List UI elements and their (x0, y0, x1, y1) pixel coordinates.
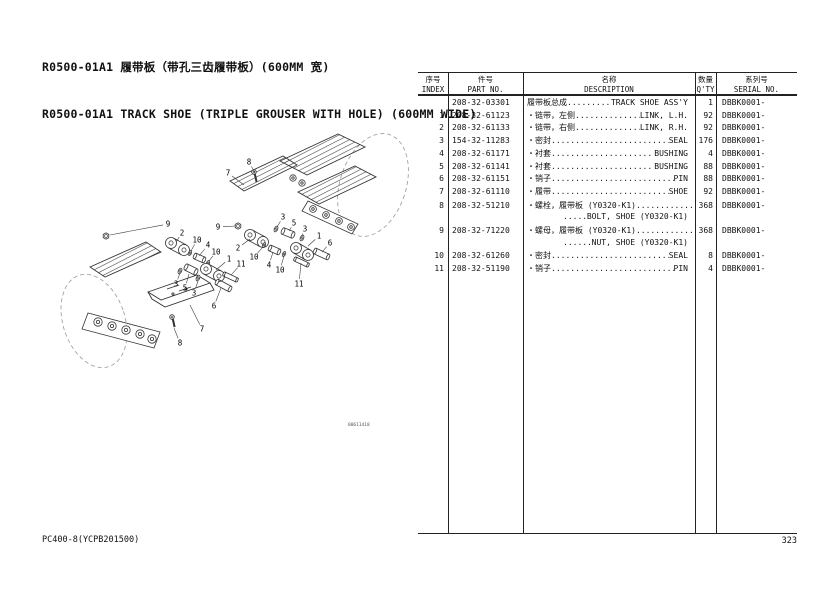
title-line-cn: R0500-01A1 履带板（带孔三齿履带板）(600MM 宽) (42, 60, 477, 76)
callout-leader (281, 256, 284, 265)
callout-number: 6 (212, 302, 217, 311)
cell-description: ・链带，左侧..................................… (523, 110, 695, 123)
header-part-no: 件号 PART NO. (448, 73, 523, 94)
callout-number: 3 (174, 280, 179, 289)
cell-index: 11 (418, 263, 448, 276)
cell-part-no: 208-32-61141 (448, 161, 523, 174)
table-row: 8208-32-51210・螺栓，履带板 (Y0320-K1).........… (418, 199, 797, 225)
table-body: 208-32-03301履带板总成.......................… (418, 97, 797, 275)
cell-index: 5 (418, 161, 448, 174)
callout-number: 5 (183, 284, 188, 293)
callout-number: 8 (178, 339, 183, 348)
callout-leader (216, 288, 221, 301)
cell-index: 4 (418, 148, 448, 161)
callout-leader (277, 221, 280, 227)
cell-description: ・履带.....................................… (523, 186, 695, 199)
table-row: 6208-32-61151・销子........................… (418, 173, 797, 186)
callout-number: 6 (328, 239, 333, 248)
cell-description: ・密封.....................................… (523, 135, 695, 148)
callout-number: 10 (211, 248, 221, 257)
callout-number: 10 (275, 266, 285, 275)
cell-part-no: 208-32-61123 (448, 110, 523, 123)
table-row: 4208-32-61171・衬套........................… (418, 148, 797, 161)
track-plate-center (230, 156, 297, 191)
cell-part-no: 208-32-61133 (448, 122, 523, 135)
cell-part-no: 208-32-61171 (448, 148, 523, 161)
table-row: 2208-32-61133・链带，右侧.....................… (418, 122, 797, 135)
cell-serial-no: DBBK0001- (716, 148, 797, 161)
cell-serial-no: DBBK0001- (716, 97, 797, 110)
cell-description: ・螺栓，履带板 (Y0320-K1)......................… (523, 200, 695, 223)
callout-leader (209, 256, 213, 261)
callout-leader (242, 239, 250, 245)
cell-serial-no: DBBK0001- (716, 250, 797, 263)
cell-index: 3 (418, 135, 448, 148)
callout-leader (308, 239, 315, 246)
table-header-separator (418, 94, 797, 96)
cell-serial-no: DBBK0001- (716, 200, 797, 211)
cell-part-no: 208-32-03301 (448, 97, 523, 110)
callout-leader (199, 249, 205, 256)
cell-description: ・螺母，履带板 (Y0320-K1)......................… (523, 225, 695, 248)
cell-qty: 4 (695, 263, 716, 276)
callout-number: 7 (200, 325, 205, 334)
callout-leader (110, 225, 163, 235)
cell-part-no: 154-32-11283 (448, 135, 523, 148)
cell-part-no: 208-32-51190 (448, 263, 523, 276)
cell-serial-no: DBBK0001- (716, 161, 797, 174)
cell-qty: 8 (695, 250, 716, 263)
table-row: 3154-32-11283・密封........................… (418, 135, 797, 148)
cell-description: ・销子.....................................… (523, 173, 695, 186)
cell-serial-no: DBBK0001- (716, 186, 797, 199)
track-plate-bottom-left (90, 242, 161, 277)
table-row: 208-32-03301履带板总成.......................… (418, 97, 797, 110)
cell-qty: 92 (695, 122, 716, 135)
exploded-parts-diagram: 87923531610410119210410111353678 0061141… (40, 85, 415, 450)
cell-serial-no: DBBK0001- (716, 122, 797, 135)
page-number: 323 (782, 536, 797, 546)
callout-number: 1 (317, 232, 322, 241)
callout-leader (216, 262, 225, 270)
callout-number: 7 (226, 169, 231, 178)
cell-serial-no: DBBK0001- (716, 173, 797, 186)
cell-qty: 368 (695, 200, 716, 211)
callout-number: 11 (236, 260, 245, 269)
callout-number: 2 (236, 244, 241, 253)
cell-serial-no: DBBK0001- (716, 110, 797, 123)
cell-part-no: 208-32-71220 (448, 225, 523, 236)
callout-number: 4 (206, 241, 211, 250)
cell-qty: 92 (695, 110, 716, 123)
callout-number: 10 (249, 253, 259, 262)
cell-description: 履带板总成...................................… (523, 97, 695, 110)
callout-number: 5 (292, 219, 297, 228)
cell-part-no: 208-32-61110 (448, 186, 523, 199)
cell-qty: 88 (695, 161, 716, 174)
cell-qty: 368 (695, 225, 716, 236)
cell-description: ・衬套.....................................… (523, 161, 695, 174)
cell-part-no: 208-32-51210 (448, 200, 523, 211)
header-qty: 数量 Q'TY (695, 73, 716, 94)
callout-leader (191, 244, 195, 251)
table-row: 9208-32-71220・螺母，履带板 (Y0320-K1).........… (418, 224, 797, 250)
callout-leader (174, 328, 178, 338)
table-header-row: 序号 INDEX 件号 PART NO. 名称 DESCRIPTION 数量 Q… (418, 73, 797, 94)
callout-number: 2 (180, 229, 185, 238)
callout-number: 4 (267, 261, 272, 270)
cell-qty: 176 (695, 135, 716, 148)
cell-serial-no: DBBK0001- (716, 225, 797, 236)
header-index: 序号 INDEX (418, 73, 448, 94)
callout-number: 3 (303, 225, 308, 234)
callout-leader (299, 263, 301, 279)
cell-description: ・销子.....................................… (523, 263, 695, 276)
callout-number: 1 (227, 255, 232, 264)
cell-part-no: 208-32-61260 (448, 250, 523, 263)
callout-number: 9 (166, 220, 171, 229)
figure-id: 00611418 (348, 422, 370, 428)
cell-part-no: 208-32-61151 (448, 173, 523, 186)
table-row: 10208-32-61260・密封.......................… (418, 250, 797, 263)
cell-index: 7 (418, 186, 448, 199)
cell-qty: 92 (695, 186, 716, 199)
cell-description: ・链带，右侧..................................… (523, 122, 695, 135)
cell-qty: 4 (695, 148, 716, 161)
cell-serial-no: DBBK0001- (716, 135, 797, 148)
cell-index: 8 (418, 200, 448, 211)
cell-description: ・密封.....................................… (523, 250, 695, 263)
cell-index: 2 (418, 122, 448, 135)
chain-links-bottom-left (82, 313, 160, 348)
header-serial-no: 系列号 SERIAL NO. (716, 73, 797, 94)
parts-table: 序号 INDEX 件号 PART NO. 名称 DESCRIPTION 数量 Q… (418, 72, 797, 534)
callout-leader (270, 252, 273, 260)
callout-number: 3 (281, 213, 286, 222)
header-description: 名称 DESCRIPTION (523, 73, 695, 94)
cell-index: 1 (418, 110, 448, 123)
callout-number: 9 (216, 223, 221, 232)
callout-leader (322, 247, 327, 252)
cell-description: ・衬套.....................................… (523, 148, 695, 161)
callout-number: 8 (247, 158, 252, 167)
cell-index: 9 (418, 225, 448, 236)
callout-number: 3 (192, 289, 197, 298)
callout-leader (190, 305, 200, 325)
callout-number: 10 (192, 236, 202, 245)
table-row: 11208-32-51190・销子.......................… (418, 263, 797, 276)
table-row: 5208-32-61141・衬套........................… (418, 161, 797, 174)
cell-qty: 88 (695, 173, 716, 186)
callout-number: 11 (294, 280, 303, 289)
table-row: 1208-32-61123・链带，左侧.....................… (418, 110, 797, 123)
cell-index: 10 (418, 250, 448, 263)
cell-index: 6 (418, 173, 448, 186)
cell-qty: 1 (695, 97, 716, 110)
cell-serial-no: DBBK0001- (716, 263, 797, 276)
table-bottom-border (418, 533, 797, 534)
table-row: 7208-32-61110・履带........................… (418, 186, 797, 199)
model-code: PC400-8(YCPB201500) (42, 535, 139, 545)
callout-leader (231, 268, 238, 275)
flat-shoe-plate (148, 275, 214, 307)
callout-leader (223, 226, 235, 227)
